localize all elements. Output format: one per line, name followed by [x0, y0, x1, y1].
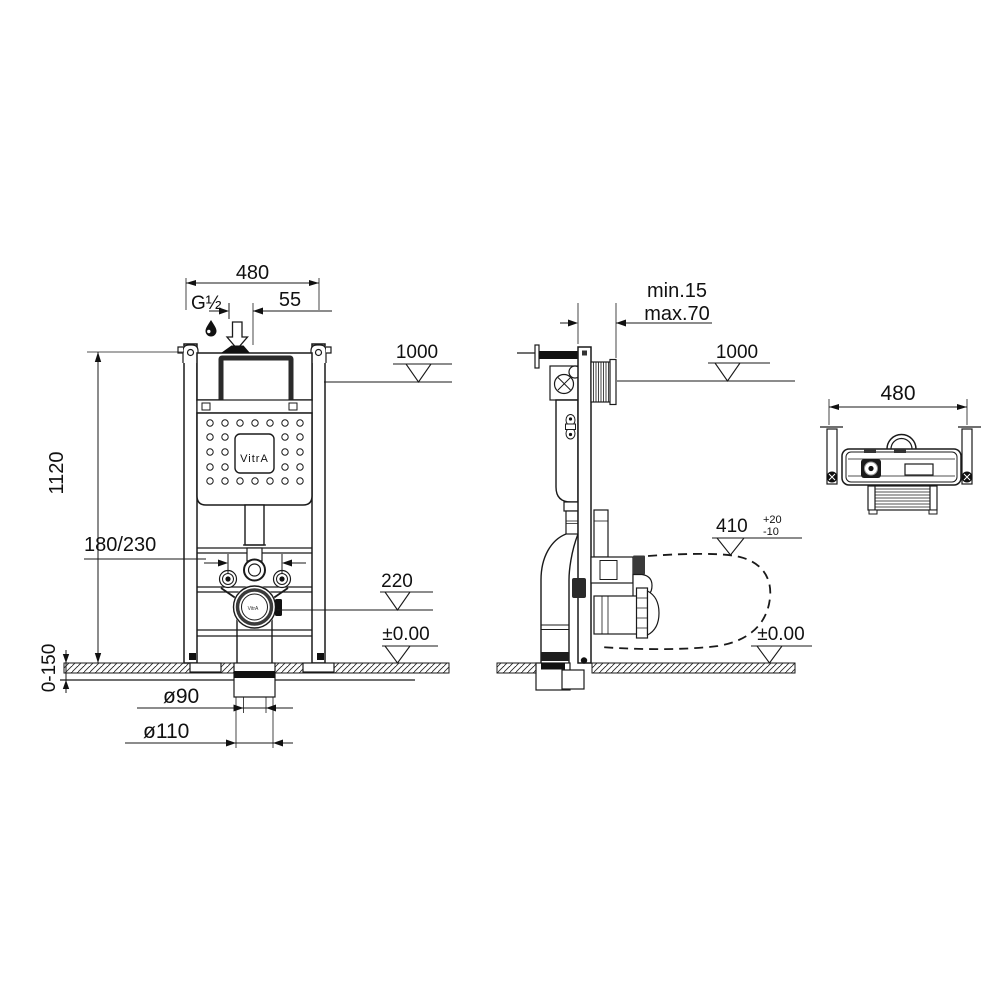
inlet-connection-knob	[861, 459, 881, 478]
foot-plate-right	[303, 663, 334, 672]
frame-rail-side	[578, 347, 591, 663]
side-view: min.15 max.70 1000 410 +20 -10 ±0.00	[497, 280, 812, 690]
top-view: 480	[820, 382, 981, 514]
datum-triangle	[385, 592, 410, 610]
foot-plate-left	[190, 663, 221, 672]
datum-floor-side-group: ±0.00	[751, 624, 812, 663]
dim-outlet-inner-dia: ø90	[163, 685, 199, 708]
datum-triangle	[717, 538, 744, 555]
dim-outlet-outer-dia: ø110	[143, 720, 189, 743]
water-drop-icon	[206, 320, 217, 337]
dim-inlet-offset-group: 55	[253, 289, 332, 345]
datum-triangle	[757, 646, 782, 663]
inlet-connector	[221, 346, 250, 354]
front-view: VitrA VitrA	[39, 262, 452, 748]
datum-floor-front-group: ±0.00	[382, 624, 438, 663]
dim-foot-adjust: 0-150	[39, 644, 60, 693]
inlet-arrow-icon	[227, 322, 248, 349]
outlet-connector-side	[572, 578, 586, 598]
datum-bowl-outlet: 410	[716, 516, 748, 537]
datum-outlet-group: 220	[277, 571, 433, 610]
drain-elbow	[541, 534, 578, 663]
dim-wall-min: min.15	[647, 280, 707, 302]
dim-top-width-group: 480	[829, 382, 967, 425]
datum-flush-height-side: 1000	[716, 342, 758, 363]
datum-floor-front: ±0.00	[382, 624, 429, 645]
dim-inlet-offset: 55	[279, 289, 301, 311]
dim-front-width: 480	[236, 262, 269, 284]
cistern-plan-body	[842, 449, 961, 485]
anchor-bolt-right	[317, 653, 324, 660]
fixing-bolt-right	[274, 571, 291, 588]
tol-minus: -10	[763, 526, 779, 538]
logo-cistern: VitrA	[240, 453, 269, 465]
dim-top-width: 480	[880, 382, 915, 405]
flush-pipe	[245, 505, 264, 545]
dim-frame-height-group: 1120	[46, 352, 184, 663]
anchor-bolt-left	[189, 653, 196, 660]
dim-frame-height: 1120	[46, 451, 68, 494]
logo-outlet: VitrA	[248, 606, 259, 612]
datum-flush-height-front: 1000	[396, 342, 438, 363]
drain-collar	[234, 663, 275, 697]
inlet-group: G½	[191, 293, 250, 353]
top-rail-left	[820, 427, 843, 484]
foot-sleeve	[562, 670, 584, 689]
fixing-bolt-left	[220, 571, 237, 588]
datum-triangle	[715, 363, 740, 381]
anchor-bolt-side	[581, 657, 587, 663]
frame-rail-right	[312, 344, 325, 663]
datum-flush-side-group: 1000	[617, 342, 795, 381]
datum-outlet-height: 220	[381, 571, 413, 592]
dim-outlet-outer-group: ø110	[125, 720, 293, 747]
waste-connector	[594, 588, 659, 638]
floor-hatch	[592, 663, 795, 673]
service-slot	[905, 464, 933, 475]
datum-triangle	[406, 364, 431, 382]
outlet-clip	[275, 599, 282, 616]
dim-wall-max: max.70	[644, 303, 710, 325]
floor-hatch	[497, 663, 536, 673]
inspection-window	[221, 358, 291, 402]
dim-fixing-centers: 180/230	[84, 534, 156, 556]
access-box	[591, 360, 616, 405]
frame-rail-left	[184, 344, 197, 663]
datum-triangle	[385, 646, 410, 663]
datum-flush-front-group: 1000	[324, 342, 452, 382]
access-box-plan	[868, 486, 937, 514]
flush-bend-pipe	[594, 510, 608, 557]
cistern-side-profile	[556, 400, 578, 502]
flush-pipe-side	[566, 511, 578, 534]
datum-floor-side: ±0.00	[757, 624, 804, 645]
datum-bowl-outlet-group: 410 +20 -10	[712, 514, 802, 555]
cross-member-lower	[197, 630, 312, 636]
installation-drawing: VitrA VitrA	[0, 0, 1000, 1000]
tol-plus: +20	[763, 514, 782, 526]
fixing-clamp	[566, 415, 576, 440]
technical-drawing-page: VitrA VitrA	[0, 0, 1000, 1000]
